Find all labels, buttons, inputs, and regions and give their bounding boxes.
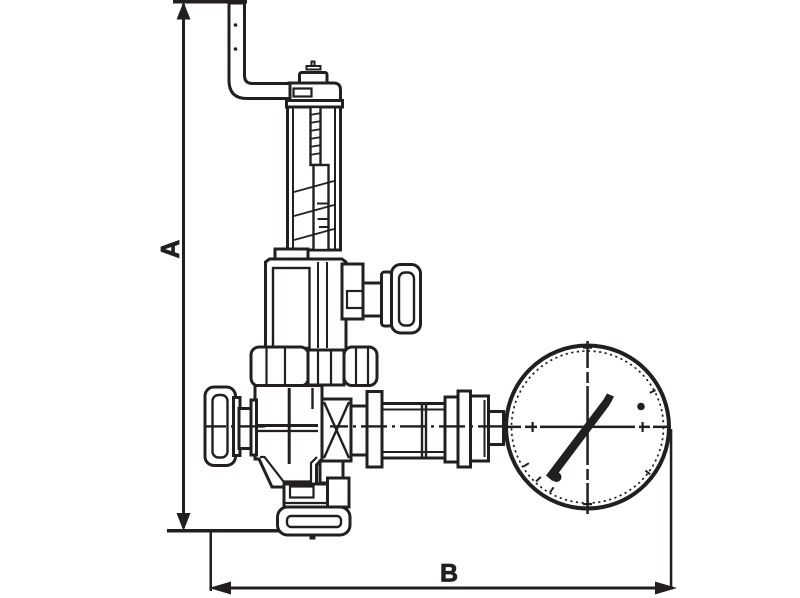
svg-text:B: B xyxy=(440,560,458,588)
svg-text:A: A xyxy=(155,240,185,259)
